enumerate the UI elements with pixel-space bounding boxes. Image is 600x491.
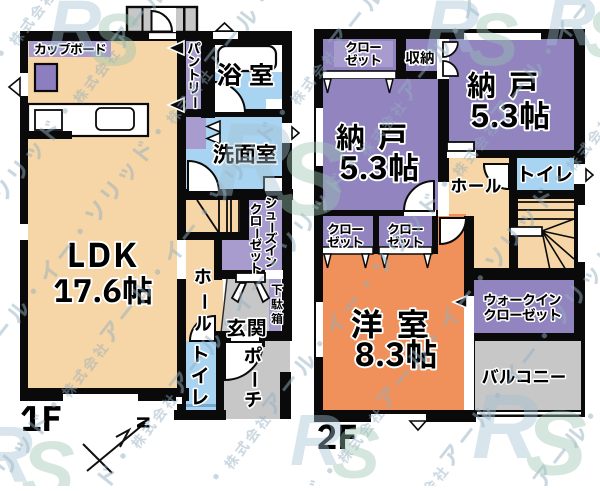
- svg-text:S: S: [525, 393, 586, 486]
- svg-text:S: S: [276, 121, 346, 238]
- svg-text:S: S: [332, 414, 380, 486]
- svg-text:S: S: [91, 0, 140, 81]
- svg-text:S: S: [469, 0, 519, 82]
- svg-text:S: S: [21, 424, 74, 486]
- svg-text:S: S: [586, 0, 600, 73]
